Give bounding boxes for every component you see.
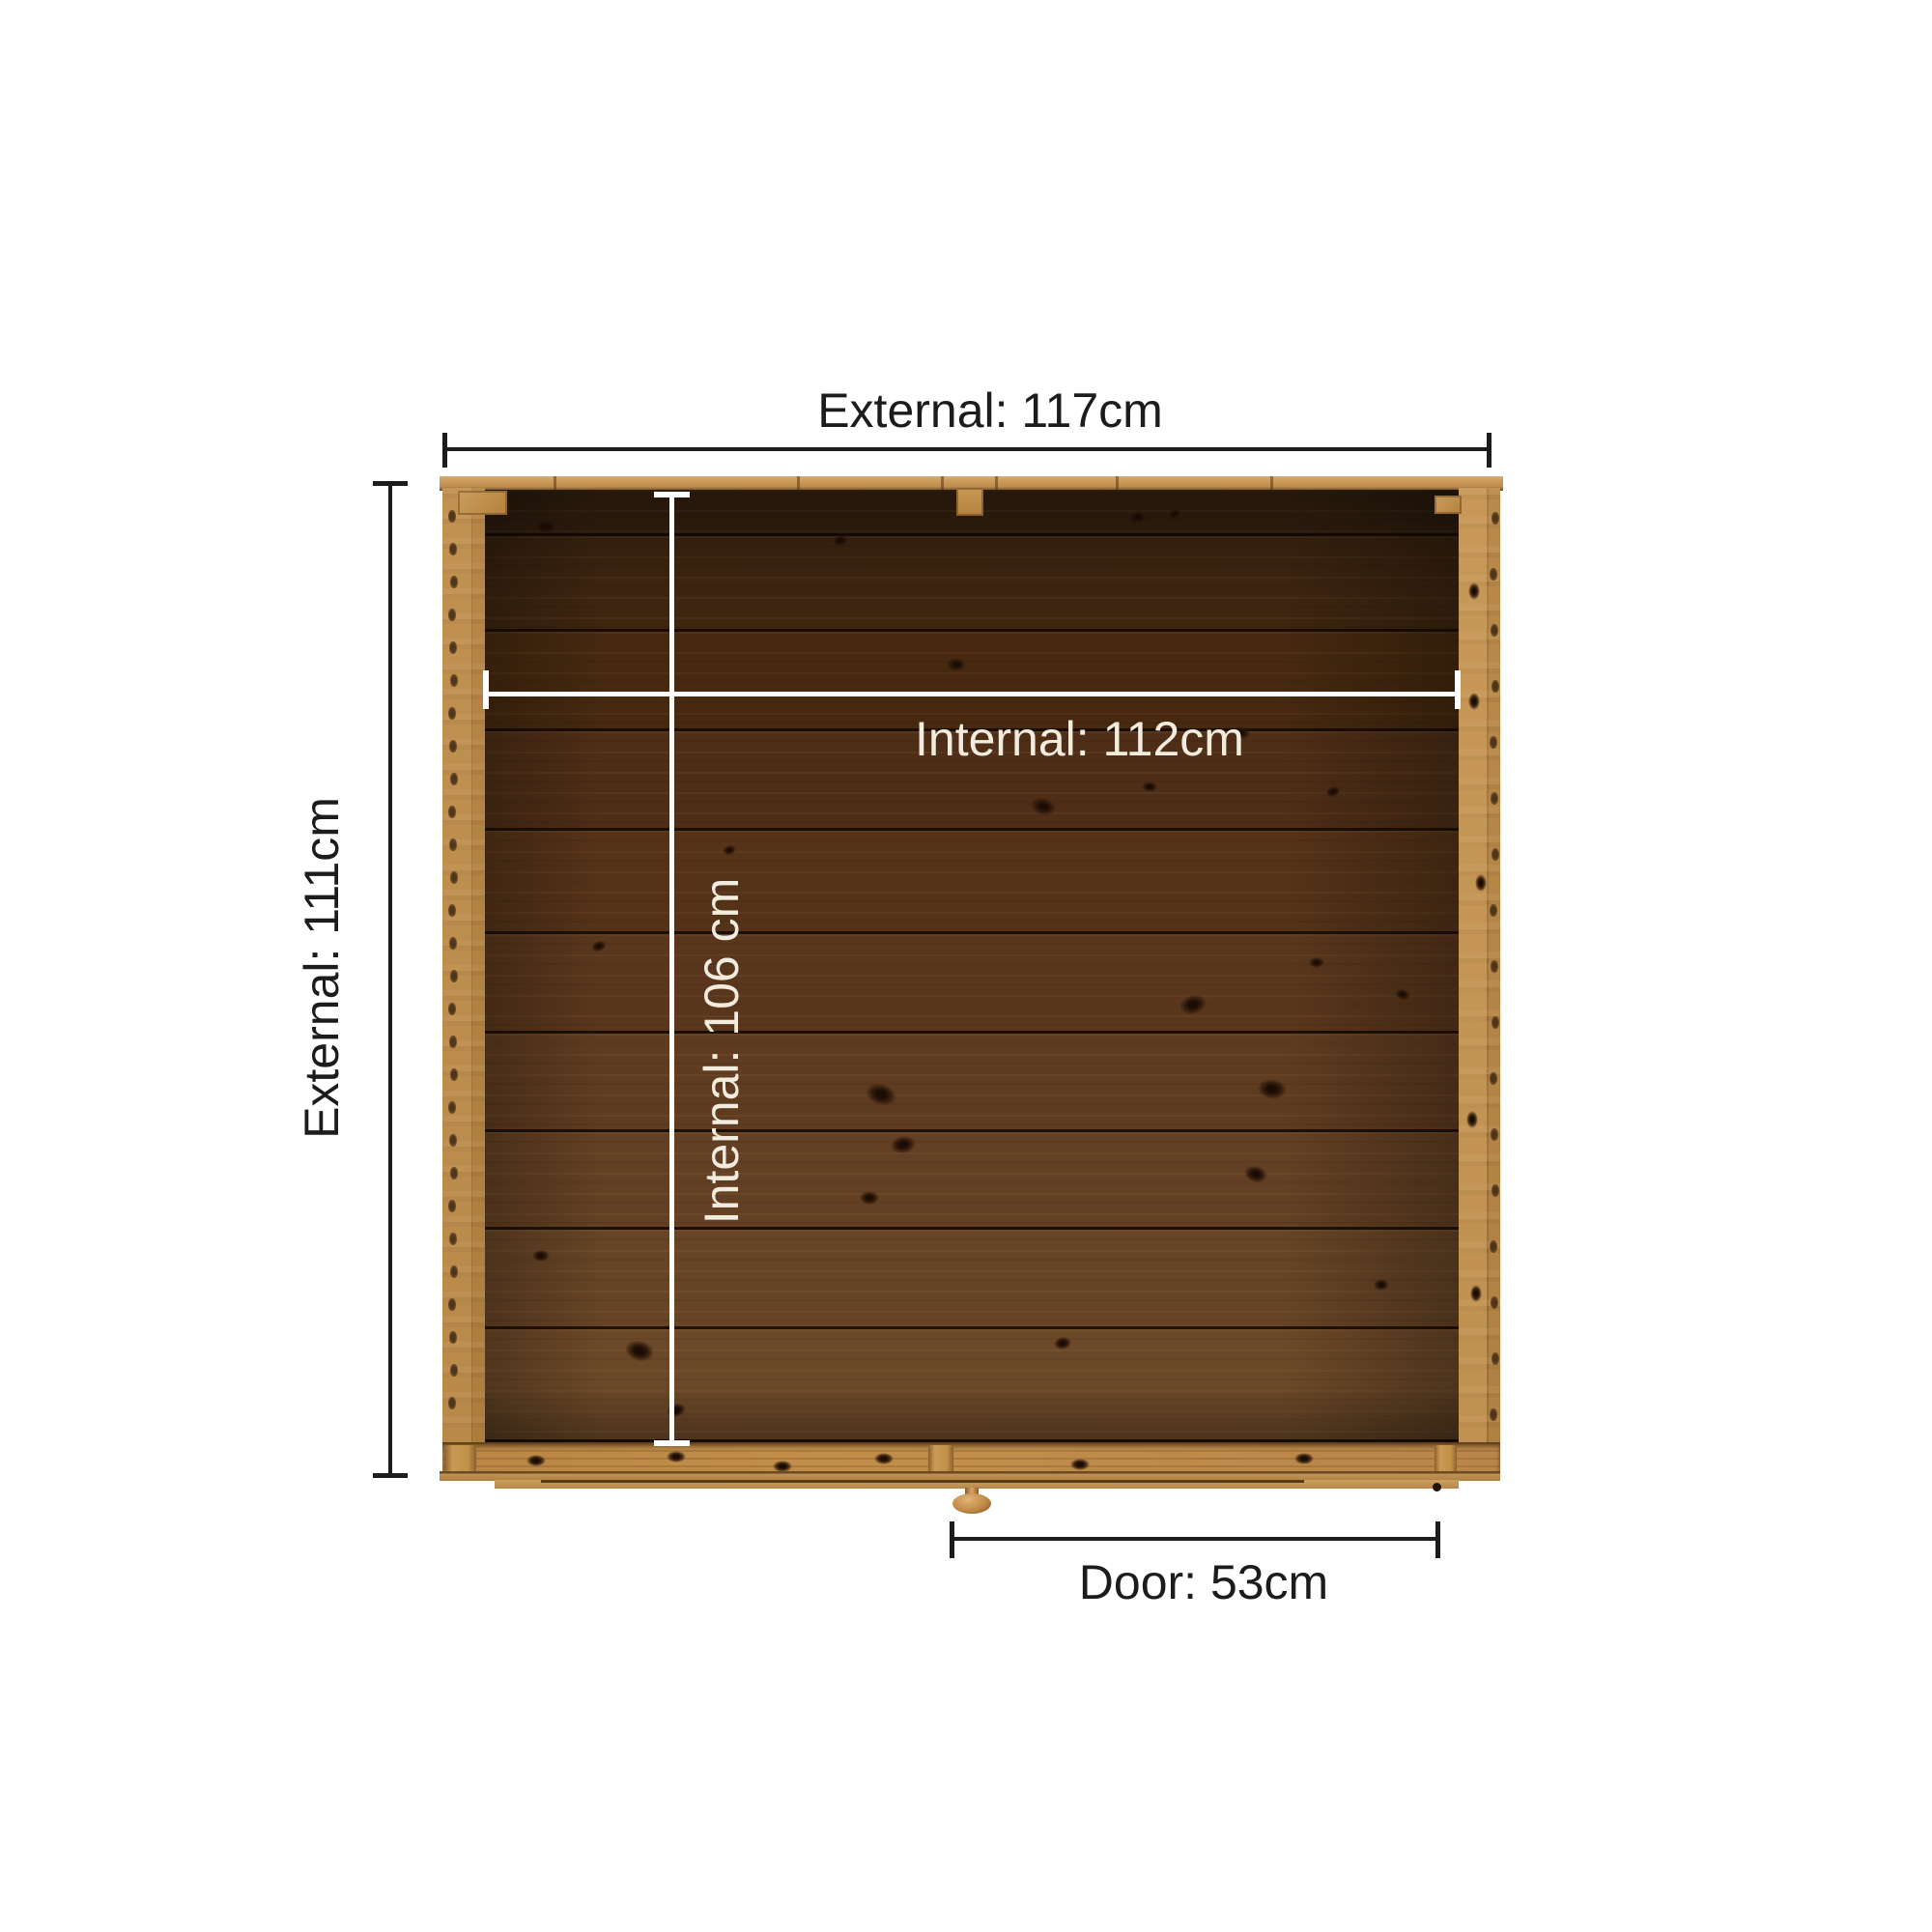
internal-depth-line [669,492,674,1446]
screw-mark [448,1003,456,1015]
internal-width-tick-right [1455,670,1461,709]
internal-depth-label: Internal: 106 cm [697,878,746,1225]
screw-mark [450,871,458,884]
interior-shading [485,490,1459,1442]
screw-mark [450,970,458,982]
screw-mark [449,740,457,753]
roof-edge-seam [1116,476,1119,491]
screw-mark [1492,1016,1499,1029]
external-width-line [444,447,1492,451]
internal-width-label: Internal: 112cm [915,715,1244,763]
external-depth-line [388,483,392,1476]
bottom-wall-band [442,1442,1500,1471]
screw-mark [449,838,457,851]
door-knob [952,1493,991,1514]
screw-mark [448,806,456,818]
roof-edge-seam [797,476,800,491]
corner-post-top-right [1435,496,1462,514]
left-wall [442,488,485,1449]
screw-mark [1490,1072,1497,1085]
screw-mark [448,1298,456,1311]
shed-plan-diagram: External: 117cm External: 111cm [0,0,1932,1932]
screw-mark [449,937,457,950]
corner-post-bottom-left [444,1445,476,1471]
roof-edge-seam [554,476,556,491]
roof-edge-seam [941,476,944,491]
corner-post-top-left [458,491,507,515]
screw-mark [1490,1408,1497,1421]
roof-edge-seam [1270,476,1273,491]
roof-batten-tab [956,488,983,516]
screw-mark [450,576,458,588]
screw-mark [448,510,456,523]
screw-mark [448,1200,456,1212]
screw-mark [449,1331,457,1344]
internal-depth-tick-top [654,492,690,497]
door-jamb-left [928,1445,953,1471]
screw-mark [1491,960,1498,973]
screw-mark [450,773,458,785]
screw-head [1433,1483,1441,1492]
wood-knot [1468,582,1480,600]
external-width-tick-left [442,433,447,468]
screw-mark [1492,1184,1499,1197]
screw-mark [448,609,456,621]
screw-mark [1492,680,1499,693]
right-wall [1459,488,1500,1471]
screw-mark [448,904,456,917]
external-depth-label: External: 111cm [298,797,346,1139]
door-width-tick-right [1435,1521,1440,1558]
internal-width-line [485,692,1460,696]
wood-knot [1294,1453,1314,1464]
screw-mark [448,1397,456,1409]
wood-knot [1468,693,1480,710]
screw-mark [449,543,457,555]
external-width-label: External: 117cm [817,386,1163,435]
roof-edge-seam [995,476,998,491]
internal-width-tick-left [483,670,489,709]
screw-mark [449,641,457,654]
screw-mark [449,1233,457,1245]
screw-mark [448,707,456,720]
wood-knot [667,1451,686,1463]
door-jamb-right [1435,1445,1457,1471]
interior-planks [485,490,1459,1442]
screw-mark [449,1036,457,1048]
screw-mark [450,1364,458,1377]
door-track-groove [541,1480,1304,1483]
wood-knot [1475,874,1487,892]
screw-mark [1490,736,1497,749]
screw-mark [1491,624,1498,637]
external-width-tick-right [1487,433,1492,468]
wood-knot [1470,1285,1482,1302]
door-width-tick-left [950,1521,954,1558]
wood-knot [1070,1459,1090,1470]
screw-mark [449,1134,457,1147]
wood-knot [874,1453,894,1464]
door-width-label: Door: 53cm [1079,1558,1328,1606]
door-width-line [952,1537,1437,1541]
screw-mark [1491,1296,1498,1309]
external-depth-tick-top [373,481,408,486]
screw-mark [1491,792,1498,805]
screw-mark [450,674,458,687]
screw-mark [1492,848,1499,861]
screw-mark [450,1167,458,1179]
internal-depth-tick-bottom [654,1440,690,1446]
screw-mark [448,1101,456,1114]
screw-mark [1491,1128,1498,1141]
external-depth-tick-bottom [373,1473,408,1478]
screw-mark [1490,568,1497,581]
screw-mark [1490,1240,1497,1253]
screw-mark [1490,904,1497,917]
screw-mark [450,1265,458,1278]
wood-knot [1466,1111,1478,1128]
wood-knot [526,1455,546,1466]
screw-mark [1492,512,1499,525]
screw-mark [450,1068,458,1081]
screw-mark [1492,1352,1499,1365]
